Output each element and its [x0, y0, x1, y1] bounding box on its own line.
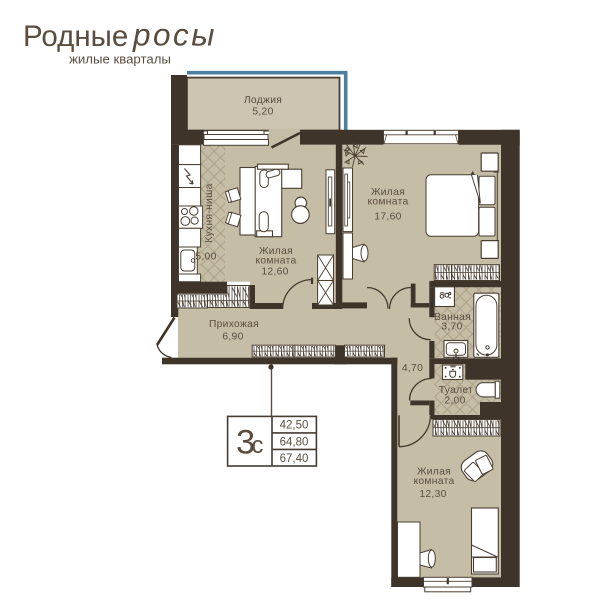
svg-text:Родные: Родные [23, 20, 128, 53]
svg-text:комната: комната [367, 197, 408, 208]
svg-text:Прихожая: Прихожая [209, 319, 259, 330]
svg-text:комната: комната [413, 476, 454, 487]
svg-text:6,90: 6,90 [222, 332, 243, 343]
svg-text:5,00: 5,00 [195, 252, 216, 263]
svg-text:12,30: 12,30 [419, 489, 446, 500]
svg-text:Лоджия: Лоджия [244, 95, 282, 106]
svg-text:64,80: 64,80 [280, 436, 309, 448]
svg-text:4,70: 4,70 [402, 363, 423, 374]
svg-text:Туалет: Туалет [439, 385, 473, 396]
svg-text:3,70: 3,70 [441, 322, 462, 333]
svg-text:Кухня-ниша: Кухня-ниша [204, 183, 215, 242]
svg-text:5,20: 5,20 [252, 107, 273, 118]
svg-text:42,50: 42,50 [280, 420, 309, 432]
svg-text:12,60: 12,60 [261, 267, 288, 278]
svg-text:комната: комната [255, 256, 296, 267]
svg-text:росы: росы [132, 16, 217, 52]
svg-text:17,60: 17,60 [374, 212, 401, 223]
svg-text:2,00: 2,00 [444, 396, 465, 407]
svg-text:67,40: 67,40 [280, 453, 309, 465]
svg-text:с: с [252, 432, 264, 459]
svg-text:жилые кварталы: жилые кварталы [69, 52, 171, 67]
